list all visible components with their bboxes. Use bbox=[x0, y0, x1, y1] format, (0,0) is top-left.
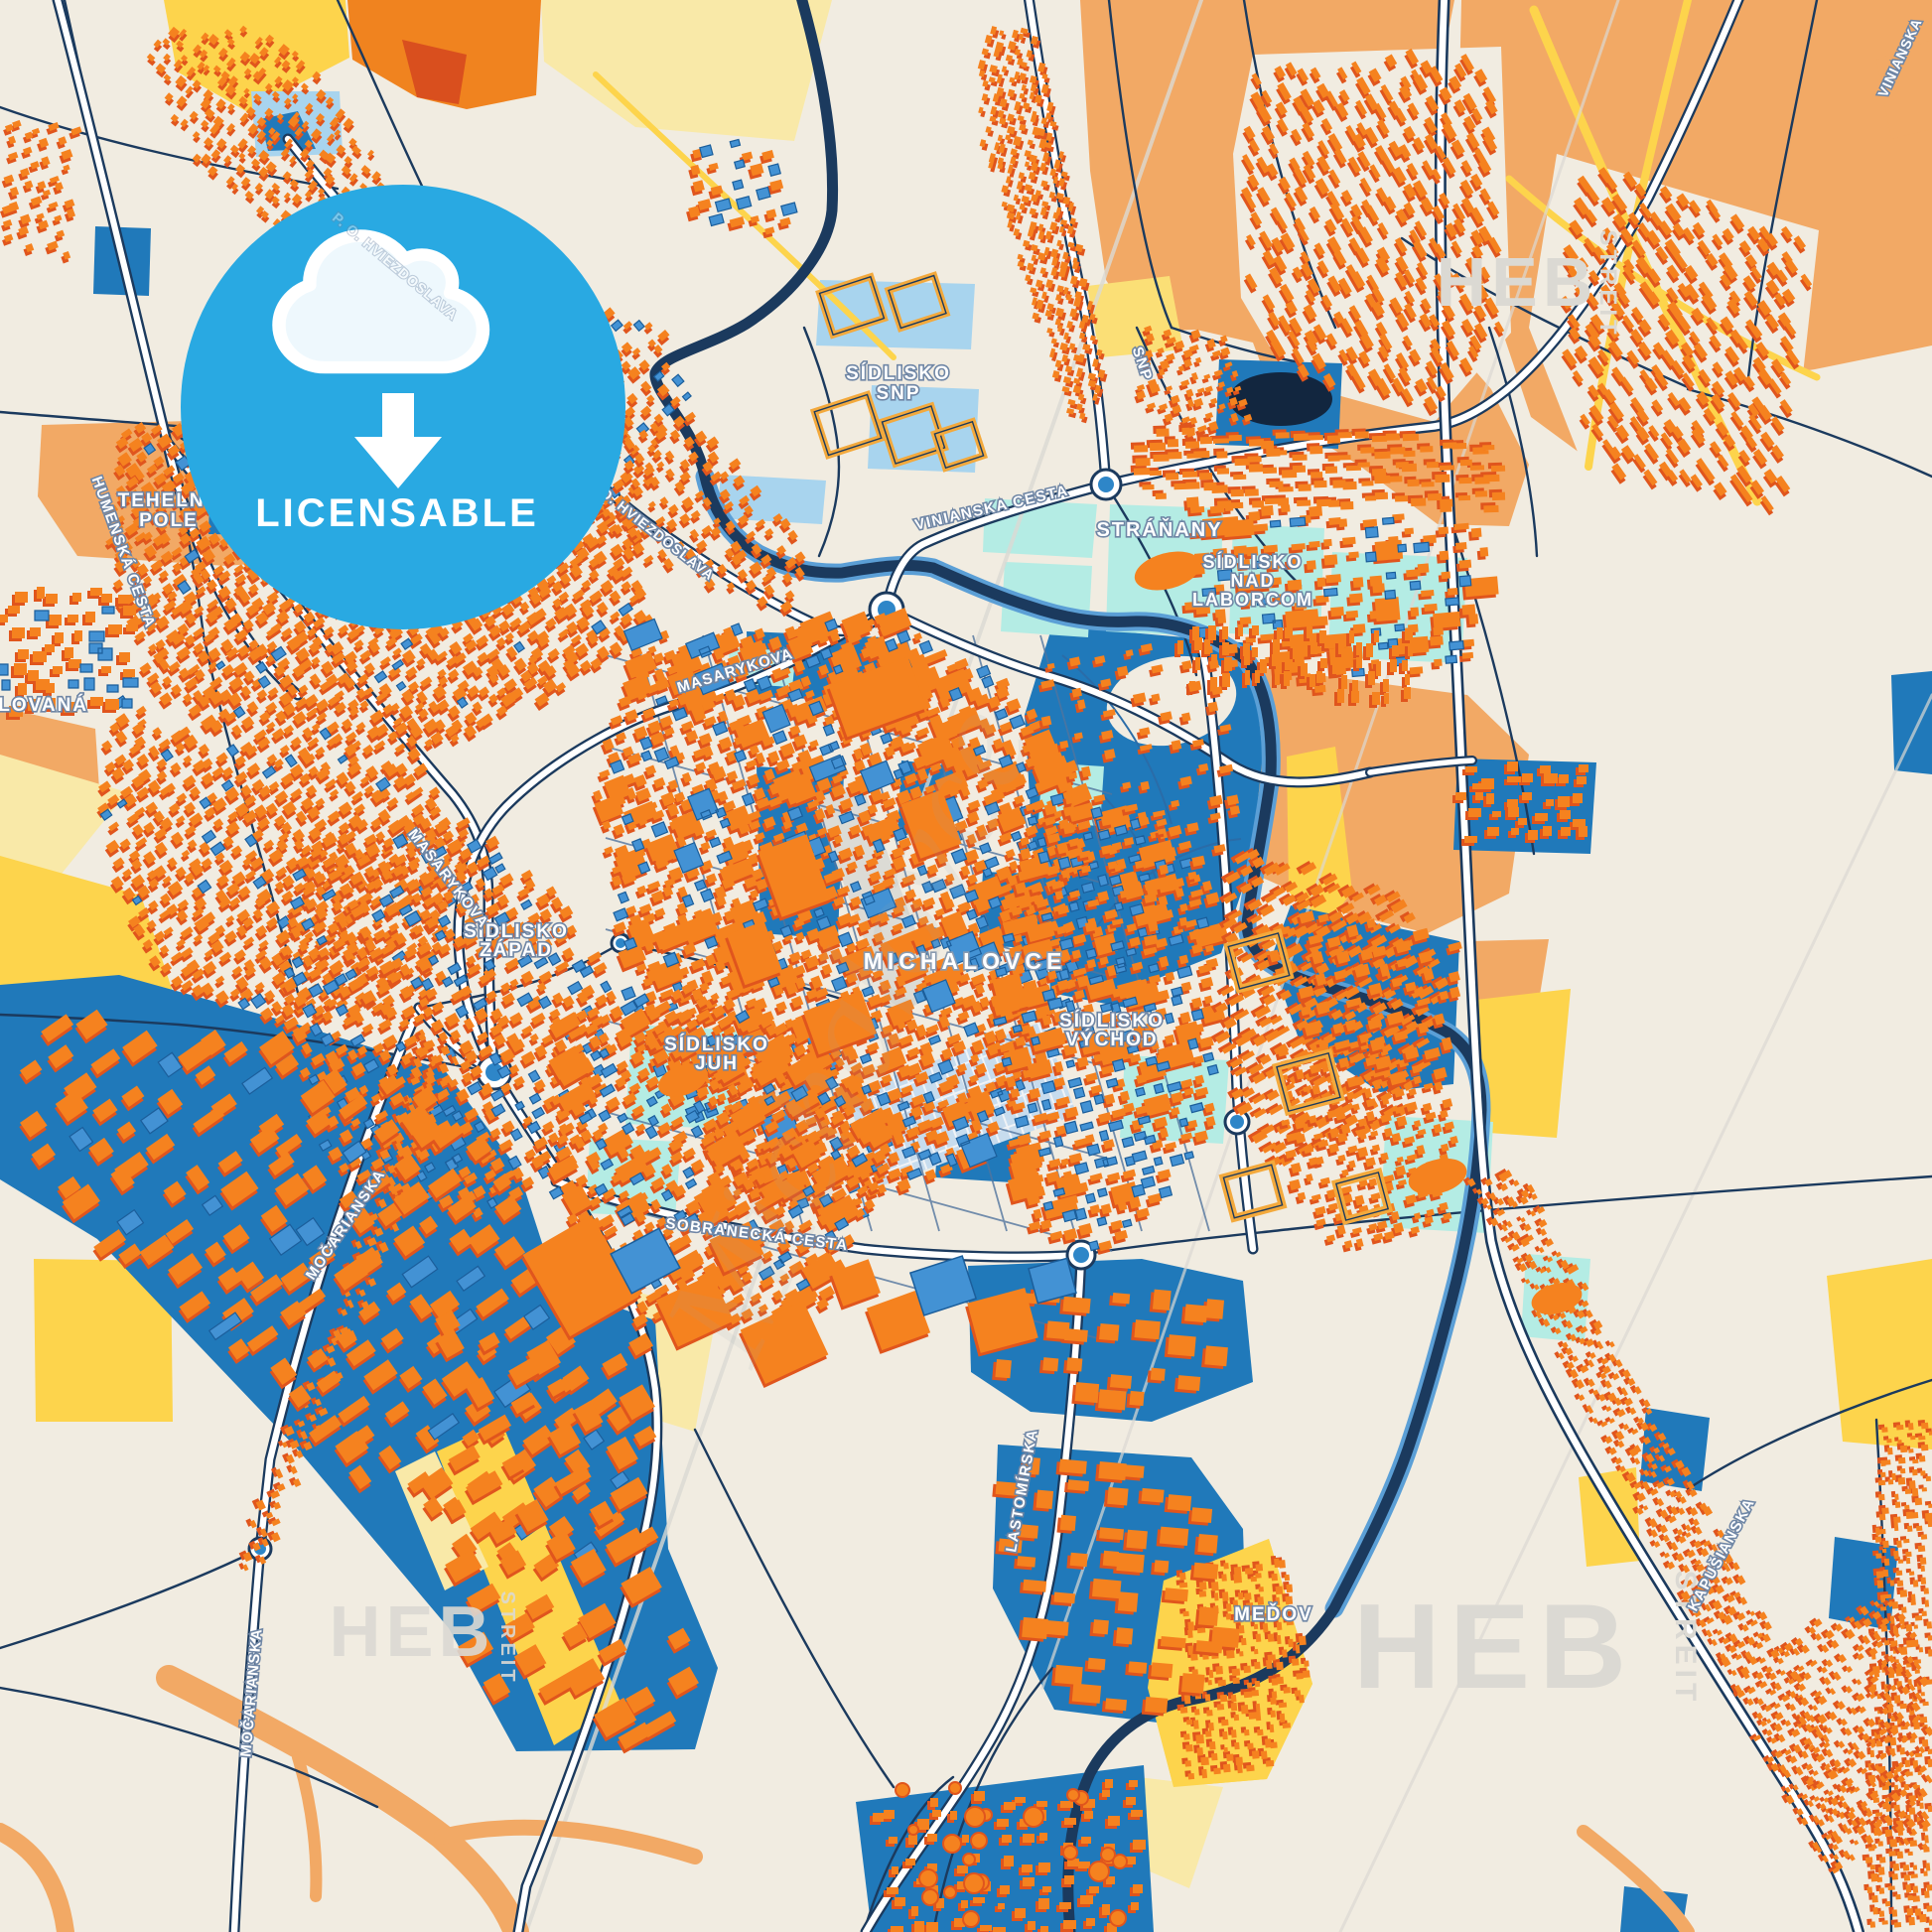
svg-text:HEB: HEB bbox=[329, 1592, 494, 1672]
svg-text:LABORCOM: LABORCOM bbox=[1192, 590, 1313, 610]
svg-text:SÍDLISKO: SÍDLISKO bbox=[664, 1034, 769, 1055]
svg-text:MEĎOV: MEĎOV bbox=[1234, 1603, 1313, 1625]
svg-text:ILOVANÁ: ILOVANÁ bbox=[0, 694, 88, 716]
svg-text:ZÁPAD: ZÁPAD bbox=[480, 939, 553, 961]
svg-text:STRÁŇANY: STRÁŇANY bbox=[1096, 517, 1222, 541]
svg-text:STREIT: STREIT bbox=[1594, 229, 1621, 338]
svg-text:LICENSABLE: LICENSABLE bbox=[255, 491, 539, 535]
svg-text:VÝCHOD: VÝCHOD bbox=[1065, 1029, 1158, 1050]
svg-text:SNP: SNP bbox=[876, 383, 920, 404]
svg-text:NAD: NAD bbox=[1231, 571, 1276, 591]
svg-text:STREIT: STREIT bbox=[496, 1590, 518, 1685]
svg-text:MICHALOVCE: MICHALOVCE bbox=[864, 948, 1067, 974]
svg-text:SÍDLISKO: SÍDLISKO bbox=[846, 362, 951, 384]
svg-text:HEB: HEB bbox=[1353, 1579, 1636, 1714]
svg-text:SÍDLISKO: SÍDLISKO bbox=[1202, 551, 1303, 572]
svg-text:POLE: POLE bbox=[139, 510, 199, 531]
svg-text:SÍDLISKO: SÍDLISKO bbox=[1059, 1010, 1165, 1032]
svg-text:HEB: HEB bbox=[1437, 243, 1598, 321]
svg-text:JUH: JUH bbox=[695, 1053, 739, 1074]
